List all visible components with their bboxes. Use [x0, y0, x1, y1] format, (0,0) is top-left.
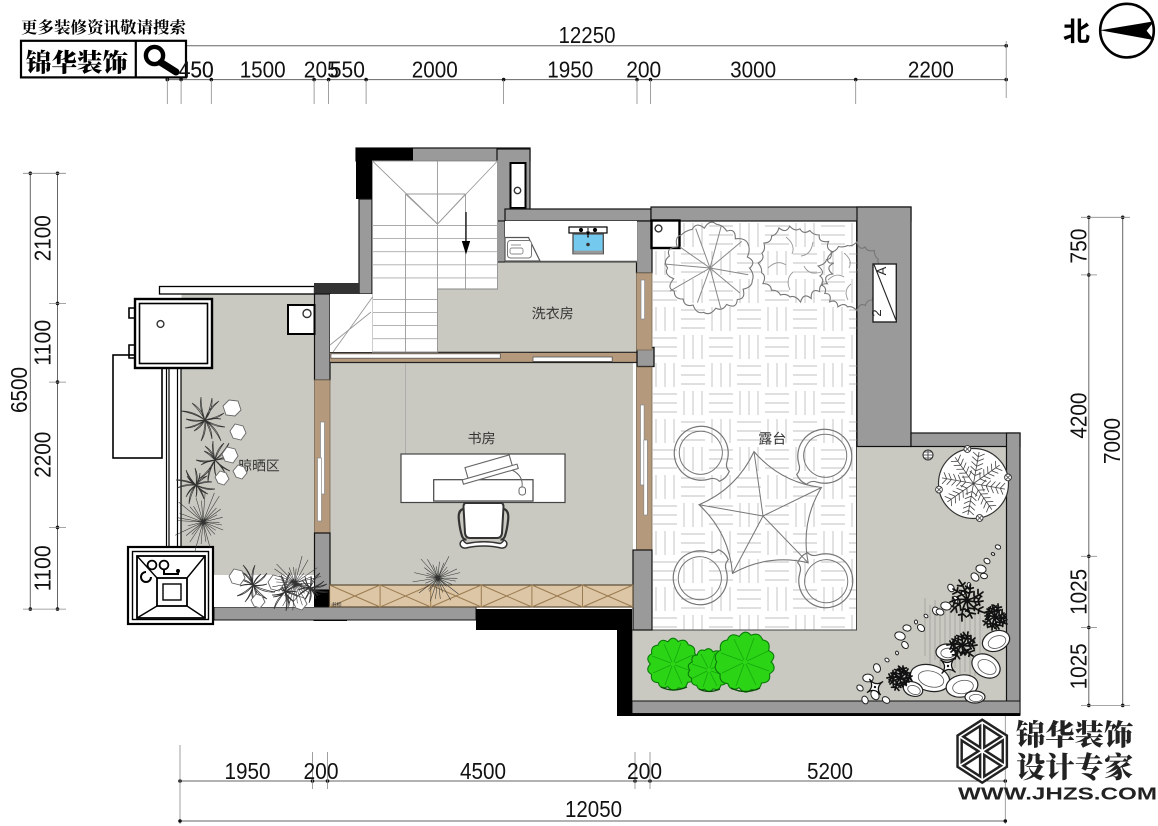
svg-text:1500: 1500 — [240, 57, 286, 83]
svg-text:12050: 12050 — [565, 796, 622, 822]
svg-text:12250: 12250 — [559, 22, 616, 48]
svg-text:200: 200 — [304, 758, 339, 784]
svg-text:1025: 1025 — [1066, 569, 1092, 615]
svg-text:6500: 6500 — [6, 367, 32, 413]
svg-text:550: 550 — [330, 57, 365, 83]
svg-text:450: 450 — [179, 57, 214, 83]
svg-text:1100: 1100 — [30, 545, 56, 591]
svg-text:1100: 1100 — [30, 320, 56, 366]
svg-text:3000: 3000 — [730, 57, 776, 83]
svg-text:2200: 2200 — [30, 432, 56, 478]
svg-text:7000: 7000 — [1099, 418, 1125, 464]
svg-text:200: 200 — [626, 57, 661, 83]
svg-text:5200: 5200 — [807, 758, 853, 784]
svg-text:200: 200 — [627, 758, 662, 784]
svg-text:2: 2 — [869, 309, 884, 316]
svg-text:750: 750 — [1066, 229, 1092, 264]
svg-text:2000: 2000 — [412, 57, 458, 83]
svg-text:A: A — [874, 266, 889, 275]
svg-text:2100: 2100 — [30, 215, 56, 261]
svg-text:4500: 4500 — [460, 758, 506, 784]
svg-text:1950: 1950 — [225, 758, 271, 784]
svg-text:2200: 2200 — [908, 57, 954, 83]
svg-text:4200: 4200 — [1066, 393, 1092, 439]
svg-text:WWW.JHZS.COM: WWW.JHZS.COM — [958, 784, 1157, 804]
svg-text:1025: 1025 — [1066, 643, 1092, 689]
svg-text:1950: 1950 — [547, 57, 593, 83]
